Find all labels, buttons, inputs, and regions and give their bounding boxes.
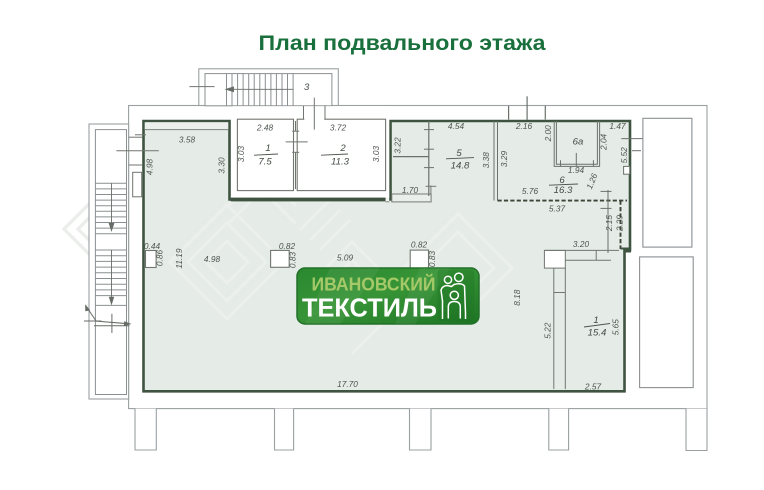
svg-text:5.22: 5.22 <box>543 322 553 339</box>
svg-text:5.52: 5.52 <box>619 147 629 164</box>
svg-text:5.09: 5.09 <box>337 253 354 263</box>
svg-text:2: 2 <box>339 143 346 154</box>
svg-text:15.4: 15.4 <box>588 328 607 339</box>
svg-text:3: 3 <box>304 82 310 93</box>
svg-text:4.98: 4.98 <box>204 254 221 264</box>
svg-text:0.86: 0.86 <box>155 250 165 267</box>
svg-text:2.29: 2.29 <box>614 215 624 233</box>
svg-text:0.83: 0.83 <box>288 252 298 269</box>
svg-text:11.3: 11.3 <box>331 157 350 168</box>
svg-text:16.3: 16.3 <box>554 185 573 196</box>
svg-text:1: 1 <box>265 143 270 154</box>
svg-text:ТЕКСТИЛЬ: ТЕКСТИЛЬ <box>302 293 437 323</box>
svg-text:5: 5 <box>456 148 462 159</box>
svg-text:0.82: 0.82 <box>411 239 428 249</box>
svg-text:3.20: 3.20 <box>573 239 590 249</box>
svg-text:1.70: 1.70 <box>402 185 419 195</box>
svg-text:11.19: 11.19 <box>174 248 184 269</box>
svg-text:3.22: 3.22 <box>393 137 403 154</box>
svg-text:2.48: 2.48 <box>256 123 274 133</box>
svg-text:5.76: 5.76 <box>522 186 539 196</box>
svg-text:3.03: 3.03 <box>236 146 246 163</box>
svg-text:4.98: 4.98 <box>145 159 155 176</box>
svg-text:2.00: 2.00 <box>543 125 553 143</box>
svg-text:0.83: 0.83 <box>427 251 437 268</box>
svg-text:3.38: 3.38 <box>481 152 491 169</box>
svg-text:3.29: 3.29 <box>499 151 509 168</box>
svg-text:6a: 6a <box>573 137 584 148</box>
svg-text:3.30: 3.30 <box>217 157 227 174</box>
svg-text:0.82: 0.82 <box>279 241 296 251</box>
svg-text:7.5: 7.5 <box>258 157 272 168</box>
svg-text:2.04: 2.04 <box>598 133 608 151</box>
svg-text:4.54: 4.54 <box>448 121 465 131</box>
svg-text:1.94: 1.94 <box>568 165 585 175</box>
svg-text:2.16: 2.16 <box>515 121 533 131</box>
svg-text:14.8: 14.8 <box>451 161 470 172</box>
svg-text:3.72: 3.72 <box>330 123 347 133</box>
svg-text:1.47: 1.47 <box>609 121 626 131</box>
svg-text:1: 1 <box>593 315 598 326</box>
svg-text:3.03: 3.03 <box>371 146 381 163</box>
svg-text:2.57: 2.57 <box>584 382 602 392</box>
svg-text:ИВАНОВСКИЙ: ИВАНОВСКИЙ <box>312 274 436 295</box>
svg-text:0.44: 0.44 <box>144 241 161 251</box>
svg-text:5.65: 5.65 <box>610 319 620 336</box>
svg-text:2.15: 2.15 <box>604 215 614 233</box>
svg-text:17.70: 17.70 <box>337 379 358 389</box>
svg-text:5.37: 5.37 <box>549 203 566 213</box>
svg-text:3.58: 3.58 <box>179 135 196 145</box>
svg-text:8.18: 8.18 <box>512 289 522 306</box>
svg-text:План подвального этажа: План подвального этажа <box>259 32 546 55</box>
